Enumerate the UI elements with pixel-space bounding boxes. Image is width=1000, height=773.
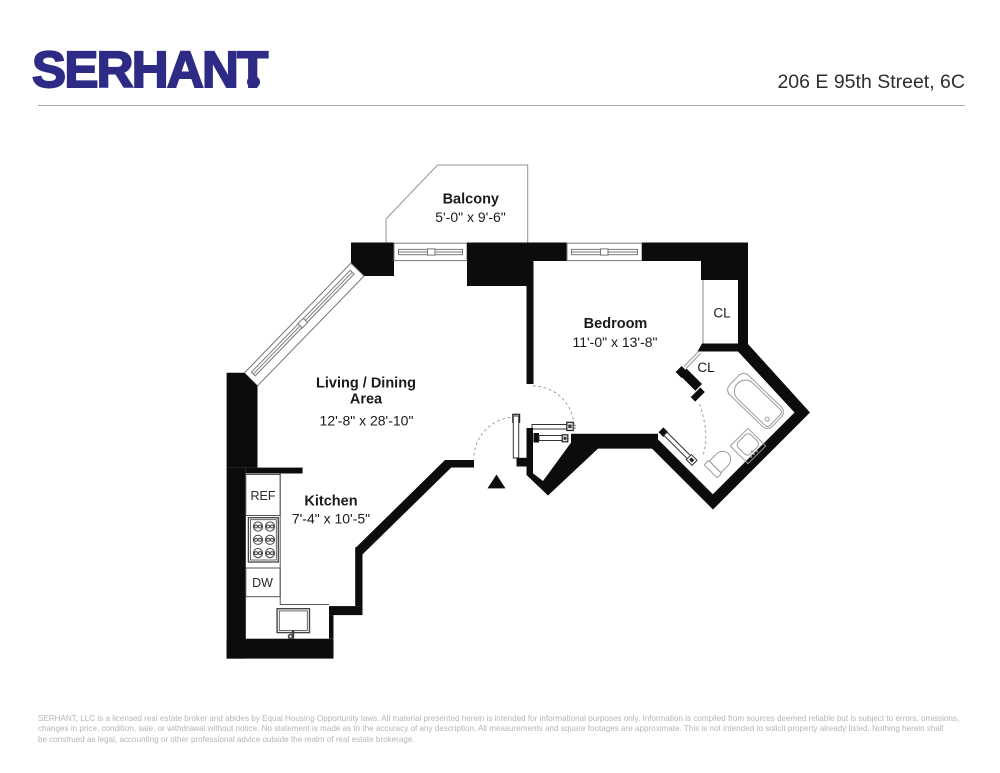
svg-text:Living / Dining: Living / Dining bbox=[316, 376, 416, 392]
svg-text:7'-4" x 10'-5": 7'-4" x 10'-5" bbox=[292, 510, 370, 526]
svg-text:Kitchen: Kitchen bbox=[304, 494, 357, 510]
svg-text:11'-0" x 13'-8": 11'-0" x 13'-8" bbox=[572, 334, 657, 350]
svg-text:Balcony: Balcony bbox=[443, 192, 499, 208]
svg-text:Area: Area bbox=[350, 392, 383, 408]
svg-text:CL: CL bbox=[713, 306, 731, 321]
svg-text:REF: REF bbox=[251, 489, 276, 503]
svg-text:12'-8" x 28'-10": 12'-8" x 28'-10" bbox=[320, 412, 414, 428]
svg-text:5'-0" x 9'-6": 5'-0" x 9'-6" bbox=[435, 209, 506, 225]
svg-text:CL: CL bbox=[697, 360, 715, 375]
svg-text:Bedroom: Bedroom bbox=[584, 316, 648, 332]
svg-text:DW: DW bbox=[252, 576, 273, 590]
